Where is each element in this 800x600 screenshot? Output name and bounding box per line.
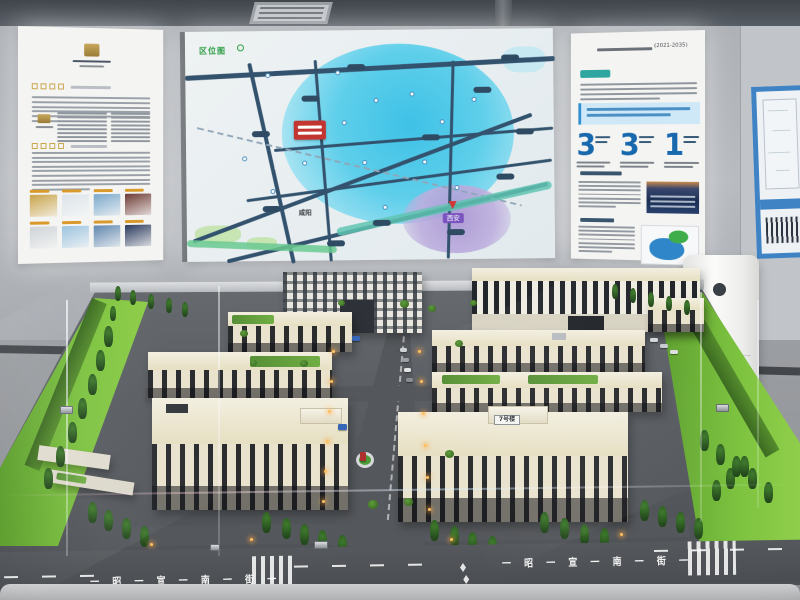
tree (658, 506, 667, 527)
glass-clamp (210, 544, 220, 551)
ceiling (0, 0, 800, 28)
street-lamp (424, 444, 427, 447)
photo-label (30, 190, 50, 193)
section-heading (580, 171, 621, 175)
map-station-dot (409, 92, 414, 97)
model-building (648, 298, 704, 332)
map-road-label (473, 87, 491, 93)
tree (166, 298, 172, 313)
stat-caption (595, 141, 607, 143)
map-station-dot (270, 189, 275, 194)
tree (640, 500, 649, 521)
tree (560, 518, 569, 539)
street-lamp (332, 350, 335, 353)
tree (182, 302, 188, 317)
stat-subcaption (664, 166, 693, 168)
street-lamp (428, 508, 431, 511)
map-station-dot (265, 73, 270, 78)
tree (96, 350, 105, 371)
rooftop-sign (166, 404, 188, 413)
building-7-sign: 7号楼 (494, 415, 520, 425)
thumbnail-photo (125, 225, 151, 247)
tree (580, 524, 589, 545)
floorplan-diagram (762, 98, 799, 189)
tree (764, 482, 773, 503)
bush (250, 360, 257, 366)
bush (404, 498, 413, 506)
tree (450, 526, 459, 547)
map-title: 区位图 (199, 46, 226, 57)
location-map-panel: 区位图 咸阳 西安 (185, 28, 555, 262)
tree (684, 300, 690, 315)
intro-panel (18, 26, 163, 264)
table-front-face (0, 584, 800, 600)
map-station-dot (302, 161, 307, 166)
street-lamp (620, 533, 623, 536)
street-lamp (450, 538, 453, 541)
tree (282, 518, 291, 539)
map-road-label (252, 131, 270, 137)
thumbnail-photo (125, 193, 151, 215)
street-lamp (422, 412, 425, 415)
bush (455, 340, 463, 347)
tree (648, 292, 654, 307)
street-lamp (328, 410, 331, 413)
car (338, 424, 347, 430)
bush (240, 330, 248, 337)
street-lamp (324, 470, 327, 473)
glass-clamp (314, 541, 328, 549)
city-label-xian: 西安 (443, 213, 464, 223)
stat-caption (639, 141, 651, 143)
tree (612, 284, 618, 299)
street-lamp (250, 538, 253, 541)
bush (470, 300, 477, 306)
plan-panel: (2021-2035) 331 (571, 30, 705, 262)
car (402, 358, 409, 362)
map-station-dot (242, 156, 247, 161)
tree (88, 502, 97, 523)
poster-chart (766, 216, 800, 243)
street-lamp (330, 380, 333, 383)
stat-subcaption (620, 162, 654, 164)
photo-label (62, 221, 81, 224)
model-building (432, 330, 645, 372)
map-station-dot (383, 205, 388, 210)
car (360, 452, 366, 461)
industrial-park-photo (647, 182, 700, 214)
stat-subcaption (576, 162, 610, 164)
map-station-dot (335, 70, 340, 75)
car (660, 344, 668, 348)
stat-value: 3 (576, 132, 596, 158)
map-station-dot (454, 185, 459, 190)
crosswalk (688, 541, 737, 576)
tree (78, 398, 87, 419)
car (670, 350, 678, 354)
tree (115, 286, 121, 301)
car (650, 338, 658, 342)
wall-poster (751, 85, 800, 259)
tree (666, 296, 672, 311)
map-road-label (422, 134, 440, 140)
map-road-label (301, 96, 319, 102)
tree (88, 374, 97, 395)
tree (262, 512, 271, 533)
bush (338, 300, 345, 306)
tree (68, 422, 77, 443)
photo-label (62, 189, 81, 192)
street-name-right: 一 昭 一 宣 一 南 一 街 一 (502, 552, 693, 570)
stat-subcaption (576, 165, 604, 167)
map-road-label (347, 64, 365, 70)
thumbnail-photo (62, 226, 89, 248)
glass-clamp (60, 406, 73, 414)
tree (748, 468, 757, 489)
tree (716, 444, 725, 465)
purifier-display (713, 283, 726, 296)
left-display-panel (18, 26, 163, 264)
city-label-xianyang: 咸阳 (299, 207, 312, 217)
thumbnail-photo (30, 195, 57, 217)
tree (300, 524, 309, 545)
tree (430, 520, 439, 541)
model-building-front-left (152, 398, 348, 510)
bush (400, 300, 409, 308)
tree (140, 526, 149, 547)
tree (44, 468, 53, 489)
stat-caption (595, 136, 610, 138)
tree (130, 290, 136, 305)
model-building-no7: 7号楼 (398, 412, 628, 522)
map-station-dot (362, 160, 367, 165)
tree (630, 288, 636, 303)
stat-caption (683, 141, 696, 143)
tree (540, 512, 549, 533)
thumbnail-photo (94, 194, 121, 216)
photo-grid (18, 26, 163, 264)
stat-subcaption (620, 166, 649, 168)
tree (732, 456, 741, 477)
map-station-dot (440, 119, 445, 124)
street-lamp (418, 350, 421, 353)
thumbnail-photo (30, 226, 57, 248)
bush (428, 305, 436, 312)
bush (368, 500, 378, 509)
thumbnail-photo (94, 225, 121, 247)
photo-label (94, 220, 113, 223)
car (406, 378, 413, 382)
map-road-label (496, 173, 514, 179)
map-road-label (373, 220, 391, 226)
car (352, 336, 360, 341)
tree (712, 480, 721, 501)
project-location-marker (294, 120, 326, 139)
tree (122, 518, 131, 539)
model-building (148, 352, 332, 398)
street-lamp (150, 543, 153, 546)
map-station-dot (342, 120, 347, 125)
bush (300, 360, 308, 367)
car (400, 348, 407, 352)
map-road-label (516, 128, 534, 134)
air-vent-icon (249, 2, 332, 24)
section-heading (580, 218, 614, 222)
tree (56, 446, 65, 467)
map-road-label (327, 240, 345, 246)
street-lamp (426, 476, 429, 479)
photo-label (94, 189, 113, 192)
car (404, 368, 411, 372)
photo-label (30, 221, 50, 224)
map-road-label (447, 229, 465, 235)
map-pin-icon (449, 201, 457, 209)
bush (445, 450, 454, 458)
tree (110, 306, 116, 321)
tree (104, 326, 113, 347)
street-lamp (420, 380, 423, 383)
stat-subcaption (664, 162, 699, 164)
map-station-dot (374, 98, 379, 103)
map-station-dot (472, 97, 477, 102)
right-display-panel: (2021-2035) 331 (571, 30, 705, 262)
photo-label (125, 189, 144, 192)
map-station-dot (422, 159, 427, 164)
street-lamp (326, 440, 329, 443)
stat-value: 1 (664, 132, 684, 159)
tree (676, 512, 685, 533)
tree (148, 294, 154, 309)
thumbnail-photo (62, 194, 89, 216)
tree (104, 510, 113, 531)
stat-value: 3 (620, 132, 640, 159)
glass-clamp (716, 404, 729, 412)
photo-label (125, 220, 144, 223)
map-road-label (263, 206, 281, 212)
map-road-label (501, 54, 519, 60)
showroom-photo: 区位图 咸阳 西安 (2021-2035) 331 (0, 0, 800, 600)
stat-caption (639, 136, 654, 138)
street-lamp (322, 500, 325, 503)
stat-caption (683, 136, 699, 138)
